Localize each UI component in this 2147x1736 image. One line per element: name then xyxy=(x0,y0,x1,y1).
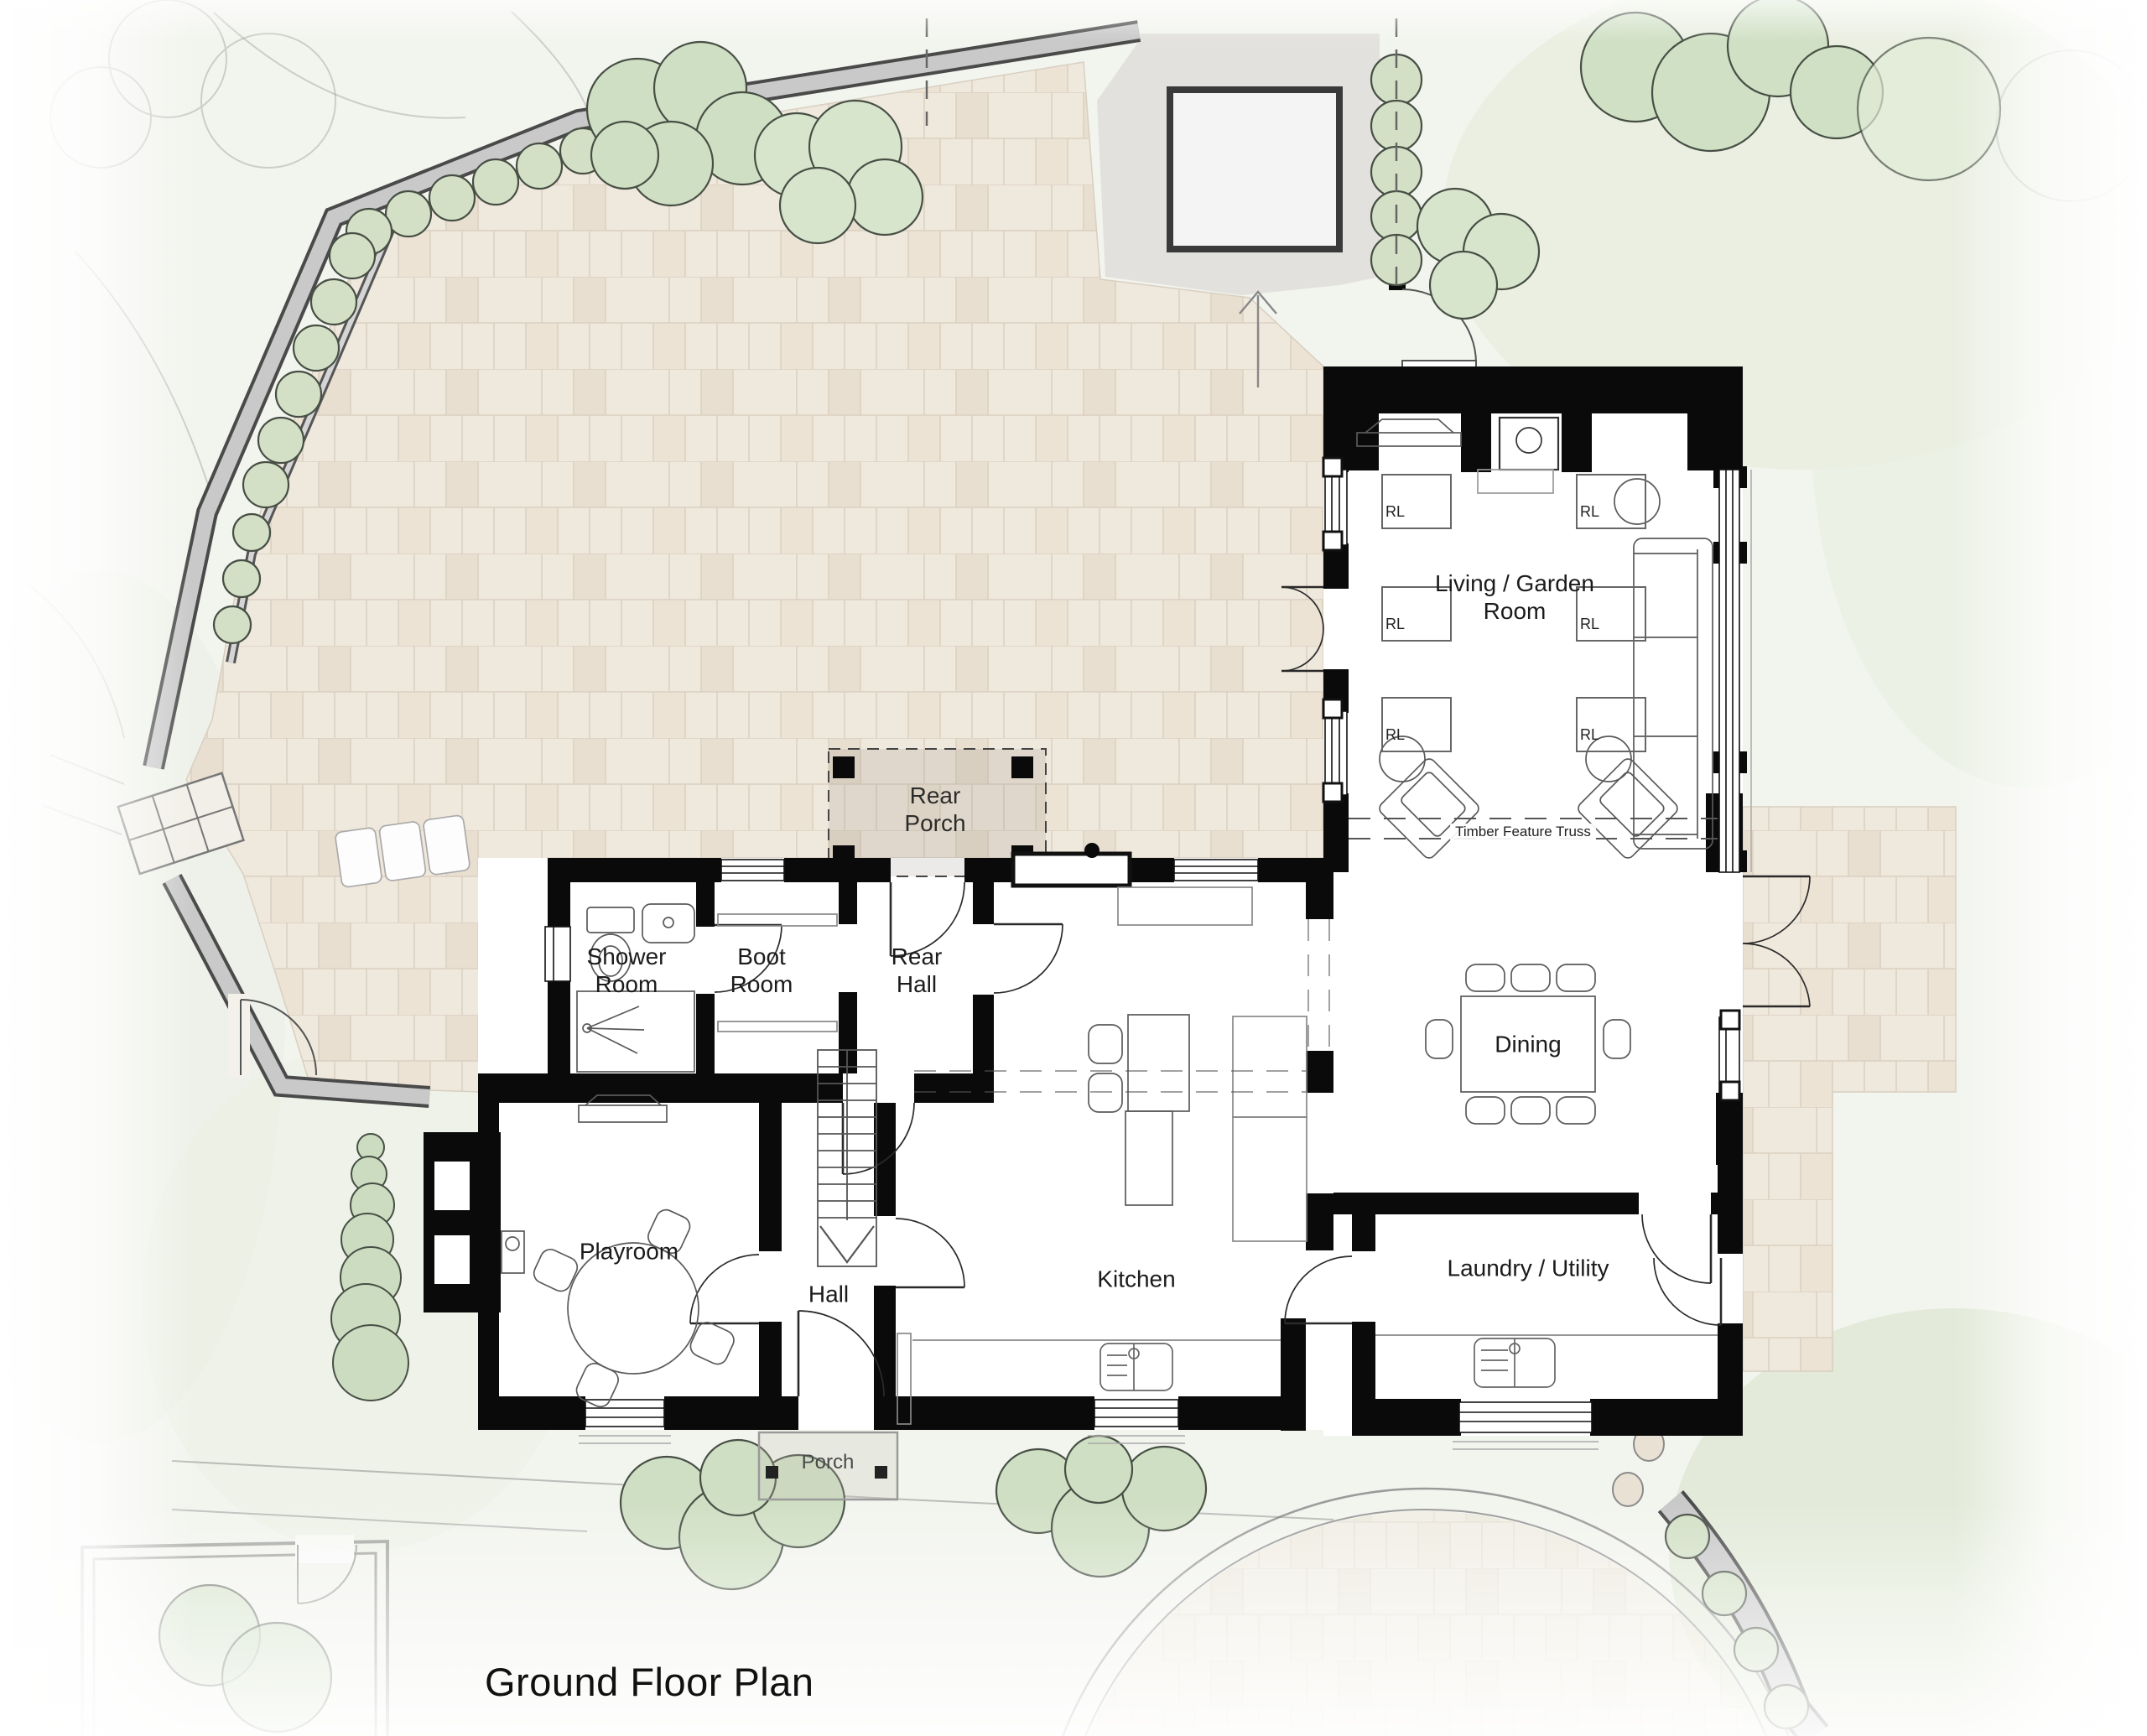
room-label-porch: Porch xyxy=(802,1451,855,1474)
kitchen-window-box xyxy=(1013,854,1130,886)
chimney-niche xyxy=(434,1235,470,1284)
rooflight-label: RL xyxy=(1580,503,1599,521)
rooflight-label: RL xyxy=(1385,726,1405,744)
room-label-boot-room: Boot Room xyxy=(730,943,793,998)
downpipe xyxy=(1084,843,1099,858)
rooflight-label: RL xyxy=(1385,616,1405,633)
room-label-rear-porch: Rear Porch xyxy=(904,782,965,837)
room-label-rear-hall: Rear Hall xyxy=(892,943,943,998)
rooflight-label: RL xyxy=(1385,503,1405,521)
chimney-niche xyxy=(434,1162,470,1210)
rooflight-label: RL xyxy=(1580,616,1599,633)
gate-opening xyxy=(228,994,250,1078)
room-label-playroom: Playroom xyxy=(580,1237,678,1265)
room-label-laundry-utility: Laundry / Utility xyxy=(1448,1254,1609,1281)
drawing-title: Ground Floor Plan xyxy=(485,1659,814,1705)
room-label-shower-room: Shower Room xyxy=(587,943,667,998)
rooflight-label: RL xyxy=(1580,726,1599,744)
site-plan-drawing xyxy=(0,0,2147,1736)
room-label-kitchen: Kitchen xyxy=(1097,1265,1175,1292)
room-label-hall: Hall xyxy=(808,1280,849,1307)
floor-plan-page: Living / Garden Room Dining Kitchen Laun… xyxy=(0,0,2147,1736)
truss-annotation: Timber Feature Truss xyxy=(1450,824,1596,840)
room-label-dining: Dining xyxy=(1495,1030,1561,1058)
garage-outbuilding xyxy=(1170,90,1339,249)
room-label-living-garden: Living / Garden Room xyxy=(1435,569,1594,625)
log-burner-stove xyxy=(1500,418,1558,470)
